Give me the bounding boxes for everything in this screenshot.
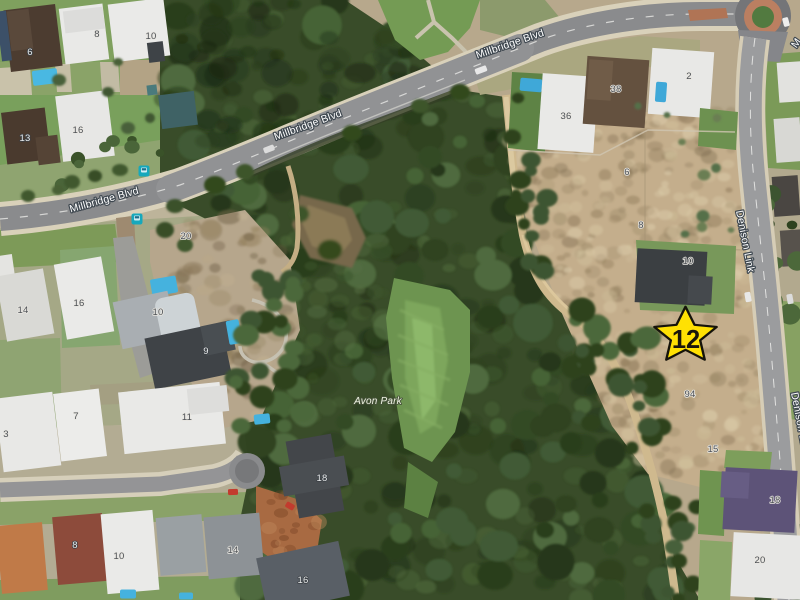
svg-text:13: 13 (20, 133, 31, 144)
svg-text:16: 16 (74, 298, 85, 309)
svg-text:6: 6 (624, 167, 629, 178)
svg-text:10: 10 (146, 31, 157, 42)
svg-text:8: 8 (94, 29, 99, 40)
svg-text:10: 10 (114, 551, 125, 562)
svg-text:16: 16 (298, 575, 309, 586)
svg-text:9: 9 (203, 346, 208, 357)
svg-text:10: 10 (683, 256, 694, 267)
svg-text:16: 16 (73, 125, 84, 136)
svg-text:11: 11 (182, 412, 192, 423)
svg-text:12: 12 (672, 326, 700, 354)
svg-text:10: 10 (153, 307, 164, 318)
svg-text:8: 8 (72, 540, 77, 551)
svg-text:18: 18 (770, 495, 781, 506)
svg-text:36: 36 (561, 111, 572, 122)
svg-text:14: 14 (18, 305, 29, 316)
svg-text:20: 20 (181, 231, 192, 242)
svg-text:38: 38 (611, 84, 622, 95)
svg-text:15: 15 (708, 444, 719, 455)
svg-text:3: 3 (3, 429, 8, 440)
svg-text:7: 7 (73, 411, 78, 422)
svg-text:14: 14 (228, 545, 239, 556)
svg-text:6: 6 (27, 47, 32, 58)
svg-text:Avon Park: Avon Park (353, 396, 403, 407)
svg-text:8: 8 (638, 220, 643, 231)
svg-text:20: 20 (755, 555, 766, 566)
svg-text:18: 18 (317, 473, 328, 484)
svg-text:2: 2 (686, 71, 691, 82)
svg-text:94: 94 (685, 389, 696, 400)
